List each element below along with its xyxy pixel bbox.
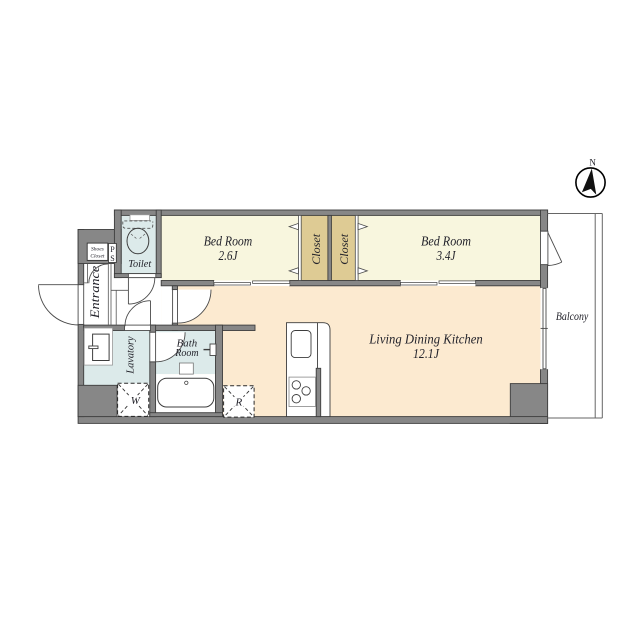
svg-text:P: P	[110, 245, 115, 254]
svg-text:3.4J: 3.4J	[436, 248, 457, 263]
svg-text:Bed Room: Bed Room	[421, 234, 471, 249]
svg-text:Closet: Closet	[90, 254, 105, 260]
svg-text:Toilet: Toilet	[128, 258, 152, 270]
svg-text:S: S	[110, 254, 114, 263]
svg-text:2.6J: 2.6J	[219, 248, 239, 263]
svg-text:Balcony: Balcony	[556, 309, 589, 323]
svg-text:Closet: Closet	[339, 233, 351, 265]
svg-text:Closet: Closet	[311, 233, 323, 265]
svg-text:R: R	[235, 396, 243, 408]
svg-text:12.1J: 12.1J	[413, 346, 440, 361]
svg-text:Living Dining Kitchen: Living Dining Kitchen	[368, 332, 483, 347]
svg-text:N: N	[589, 157, 596, 167]
svg-text:Lavatory: Lavatory	[125, 336, 137, 374]
svg-text:Room: Room	[174, 347, 198, 359]
svg-text:Shoes: Shoes	[91, 247, 104, 253]
svg-text:W: W	[131, 395, 141, 407]
svg-text:Entrance: Entrance	[88, 265, 102, 319]
svg-text:Bed Room: Bed Room	[204, 234, 253, 249]
